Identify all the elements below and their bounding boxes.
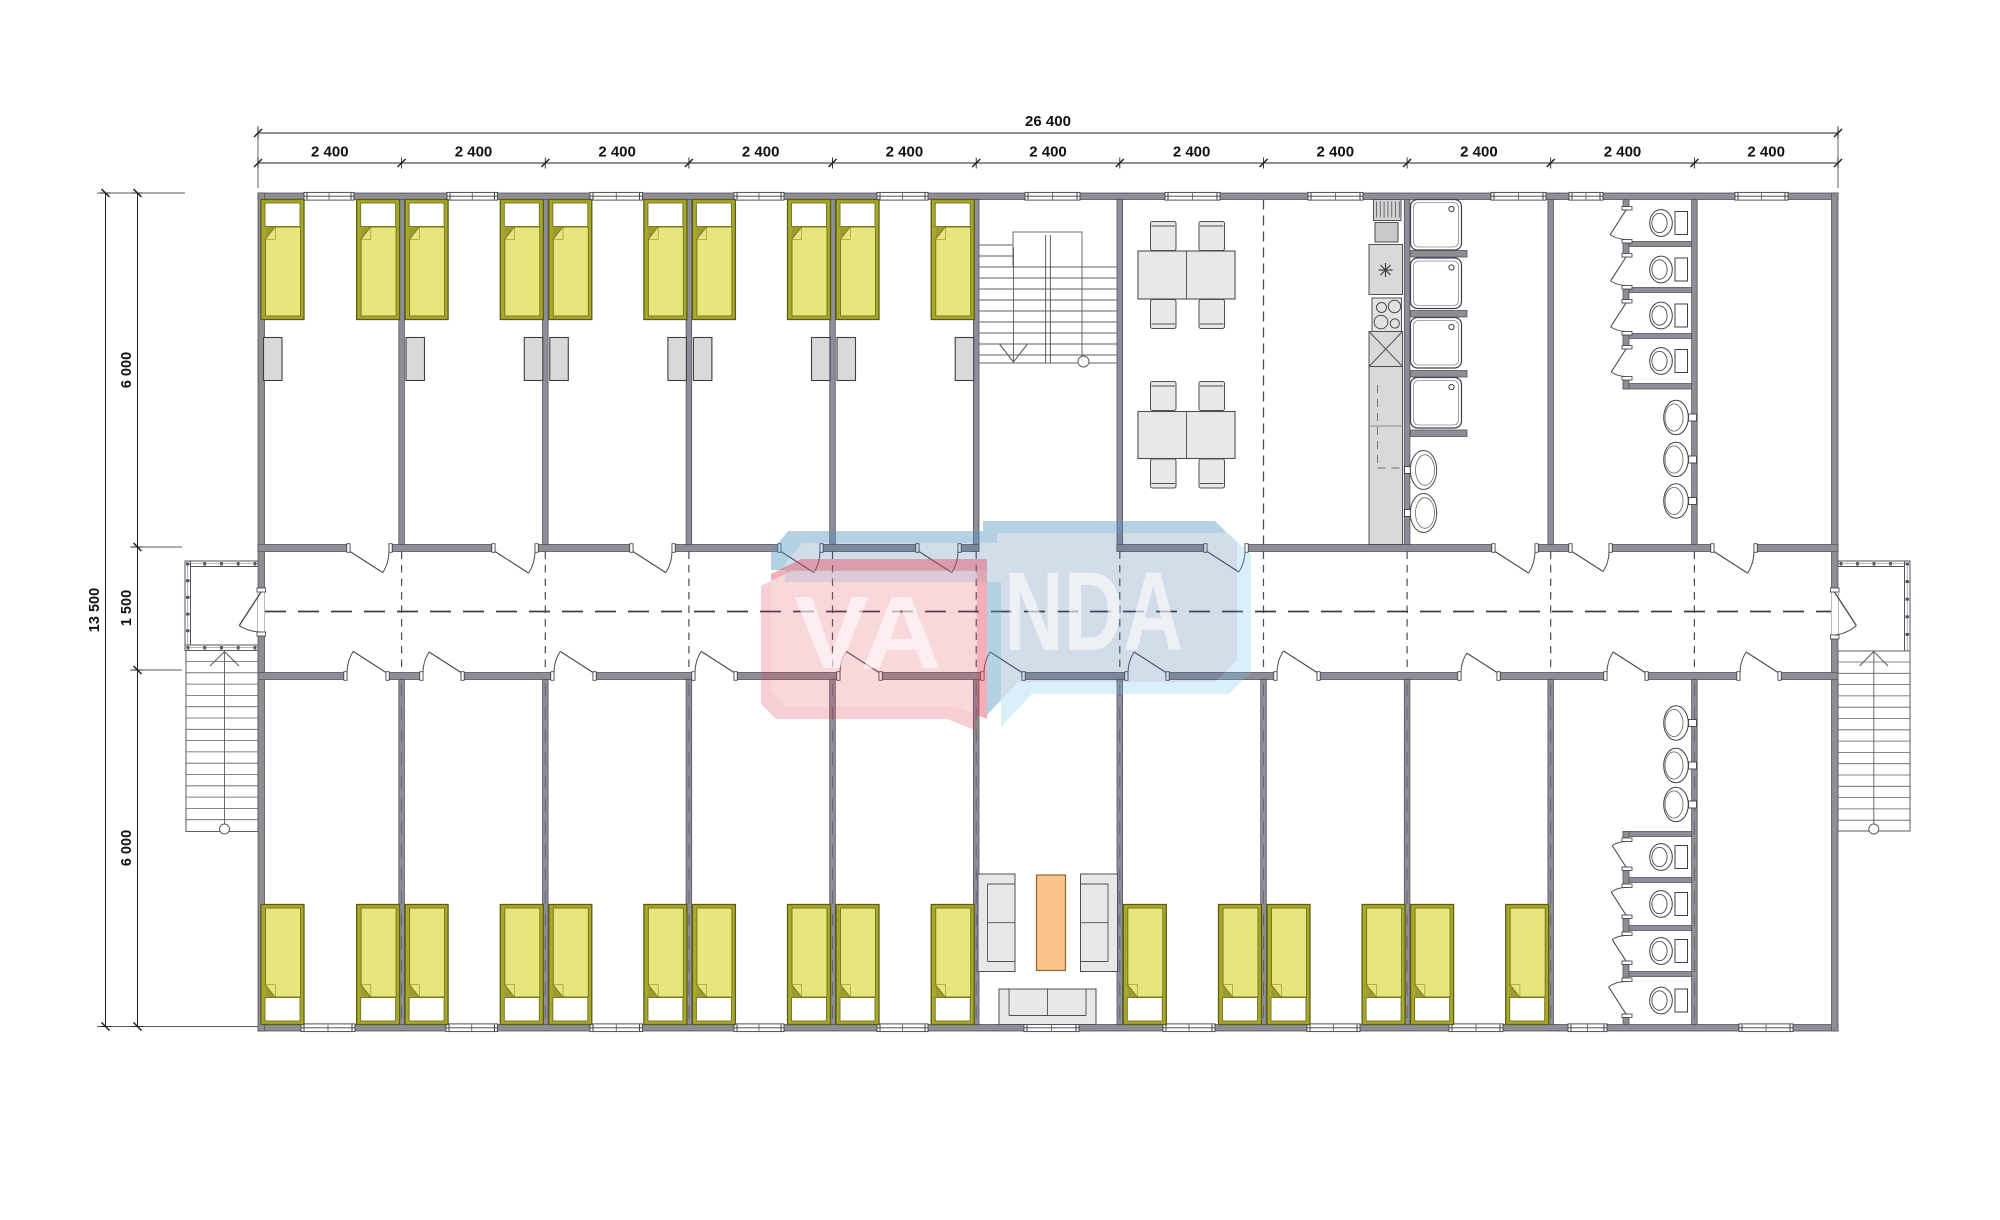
svg-text:2 400: 2 400 (742, 144, 780, 161)
svg-text:2 400: 2 400 (455, 144, 493, 161)
svg-text:2 400: 2 400 (1747, 144, 1785, 161)
svg-text:1 500: 1 500 (119, 590, 135, 626)
svg-text:2 400: 2 400 (1460, 144, 1498, 161)
svg-text:2 400: 2 400 (598, 144, 636, 161)
svg-text:VA: VA (794, 575, 942, 690)
svg-text:NDA: NDA (1004, 549, 1183, 674)
svg-text:2 400: 2 400 (1604, 144, 1642, 161)
svg-text:2 400: 2 400 (1317, 144, 1355, 161)
svg-text:13 500: 13 500 (87, 588, 103, 632)
svg-text:6 000: 6 000 (119, 352, 135, 388)
svg-text:2 400: 2 400 (1029, 144, 1067, 161)
svg-text:2 400: 2 400 (1173, 144, 1211, 161)
svg-text:6 000: 6 000 (119, 830, 135, 866)
svg-text:26 400: 26 400 (1025, 113, 1071, 130)
svg-text:2 400: 2 400 (886, 144, 924, 161)
svg-text:2 400: 2 400 (311, 144, 349, 161)
